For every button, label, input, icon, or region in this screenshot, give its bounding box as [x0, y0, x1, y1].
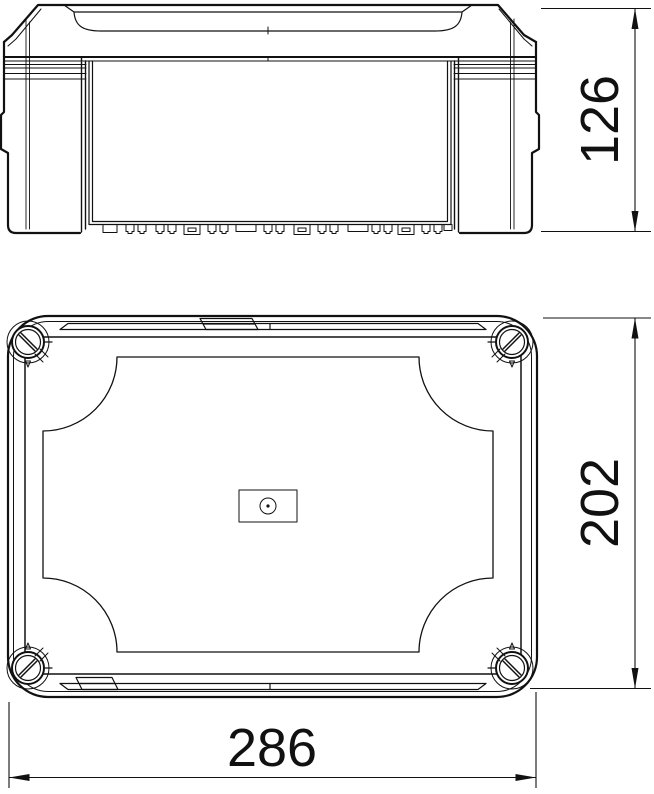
screw-head-outer — [496, 652, 528, 684]
screw-pendant — [510, 643, 515, 649]
technical-drawing-page: 126 202 286 — [0, 0, 654, 794]
top-channel-strip — [60, 324, 486, 330]
screw-head-outer — [12, 326, 44, 358]
bottom-clip-row — [103, 225, 452, 235]
screw-bottom-right — [488, 643, 533, 689]
center-face — [89, 61, 451, 225]
lid-outline — [4, 5, 536, 42]
body-left-edge — [1, 42, 80, 233]
dimension-width-label: 286 — [227, 718, 317, 778]
screw-pendant — [26, 643, 31, 649]
front-elevation-view — [1, 5, 539, 235]
corner-block-ribs — [4, 65, 536, 80]
dimension-width: 286 — [9, 692, 536, 788]
arrow-down-icon — [632, 668, 639, 689]
screw-pendant — [26, 361, 31, 367]
screw-pendant — [510, 361, 515, 367]
plan-second-outline — [14, 322, 532, 692]
arrow-left-icon — [9, 774, 30, 781]
dimension-height-label: 126 — [570, 75, 630, 165]
corner-block-facet-lines — [26, 19, 514, 229]
plan-inner-wall — [25, 337, 521, 674]
screw-head-outer — [12, 652, 44, 684]
body-right-edge — [460, 42, 539, 233]
arrow-down-icon — [632, 211, 639, 232]
arrow-right-icon — [516, 774, 537, 781]
plan-outer-outline — [8, 316, 537, 697]
bottom-channel-strip — [60, 684, 486, 690]
dimension-depth: 202 — [530, 318, 651, 689]
corner-block-edges — [82, 57, 459, 232]
top-channel-slider — [200, 319, 258, 330]
dimension-height: 126 — [541, 9, 651, 232]
center-label-plate — [239, 490, 297, 522]
arrow-up-icon — [632, 9, 639, 30]
arrow-up-icon — [632, 318, 639, 339]
plan-view — [7, 316, 537, 697]
membrane-dot-icon — [266, 504, 269, 507]
bottom-channel-slider — [76, 678, 118, 690]
screw-head-outer — [496, 326, 528, 358]
dimension-depth-label: 202 — [570, 458, 630, 548]
